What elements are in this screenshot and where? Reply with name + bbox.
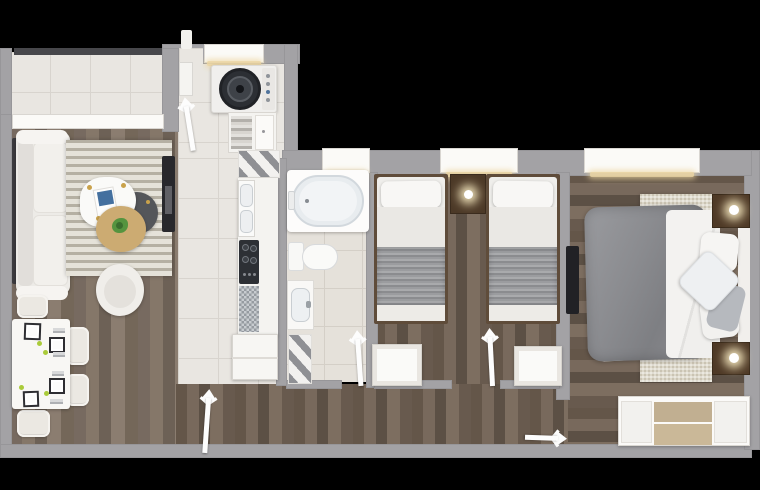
balcony-floor [10,52,166,116]
cooktop-knob-2 [248,273,251,276]
wardrobe-left-door [621,401,652,443]
laundry-shelf-handle [262,130,265,133]
twin-cabinet-left-top [377,349,417,381]
hallway-floor [176,384,568,446]
wall-balcony-left [0,48,12,118]
basin-faucet [306,301,311,308]
dining-chair-top [17,295,48,318]
placemat-4 [23,391,40,408]
twin-bed-left-blanket [377,247,445,306]
placemat-2 [49,337,65,353]
twin-bed-right-foot [489,305,557,321]
toilet-bowl [302,244,338,270]
twin-bed-right-blanket [489,247,557,306]
napkin-dot-1 [37,341,42,346]
master-lamp-bottom [729,353,739,363]
cooktop-knob-1 [243,273,246,276]
bathroom-door-arrow-stem [355,339,363,386]
napkin-dot-3 [19,385,24,390]
sofa-armrest-top [16,130,68,144]
master-lamp-top [729,205,739,215]
kitchen-backsplash-mosaic [239,286,259,332]
washing-machine-hub [236,85,244,93]
cutlery-mark-3 [52,371,64,376]
floor-plan [0,0,760,490]
twin-bed-left-foot [377,305,445,321]
burner-1 [242,244,249,251]
coffee-table-plant-core [116,222,123,229]
twin-bed-left-sheet [377,207,445,251]
bathtub-drain [305,199,309,203]
placemat-3 [49,378,65,394]
bedroom1-door-arrow [481,328,500,387]
master-tv [566,246,579,314]
magazine-cover [97,190,114,206]
wall-south [0,444,752,458]
kitchen-sink-bowl-1 [240,184,253,207]
bedroom1-door-arrow-stem [487,337,495,386]
armchair-seat [104,275,136,308]
sofa-seat-cushion-1 [33,142,68,213]
burner-2 [250,245,257,252]
gold-dot-white-2 [121,183,126,188]
wardrobe-shelf-top [654,402,712,422]
bathtub-faucet [288,191,295,210]
entry-door-leaf [179,62,193,96]
twin-cabinet-right-top [519,351,557,381]
master-door-arrow-stem [525,435,558,441]
wardrobe-right-door [714,401,747,443]
wardrobe-shelf-bottom [654,424,712,445]
gold-dot-dark-1 [146,200,150,204]
bathroom-door-arrow [349,330,369,387]
wall-balcony-divider [162,48,179,132]
hallway-door-arrow-stem [202,398,211,453]
balcony-window-band [12,114,164,129]
kitchen-upper-cabinet [238,150,280,178]
twin-bed-right-pillow [493,180,553,208]
napkin-dot-4 [44,391,49,396]
cutlery-mark-4 [50,399,63,404]
master-door-arrow [525,429,568,446]
twin-bed-left-pillow [381,180,441,208]
twin-nightstand-lamp [464,190,473,199]
master-headboard [738,220,750,346]
sofa-back-cushions [18,140,33,286]
cutlery-mark-2 [53,352,65,357]
master-window-glow [590,172,694,177]
laundry-towels [231,116,252,149]
fridge-seam [232,357,278,359]
balcony-railing [14,48,164,55]
panel-dot-4 [266,98,270,102]
wall-entry-right [284,44,298,156]
dining-chair-bottom [17,410,50,437]
twin-bed-right-sheet [489,207,557,251]
gold-dot-white-1 [87,185,92,190]
panel-dot-1 [266,74,270,78]
burner-3 [242,256,249,263]
panel-dot-3 [266,90,270,94]
entry-door-swing-arrow-stem [184,106,196,151]
entry-door-outside [181,30,192,49]
kitchen-sink-bowl-2 [240,210,253,233]
sofa-seat-cushion-2 [33,215,68,286]
cutlery-mark-1 [53,328,65,333]
tv-bracket [165,186,172,214]
cooktop-knob-3 [253,273,256,276]
placemat-1 [24,323,42,341]
wall-west [0,114,12,458]
master-window [584,148,700,173]
burner-4 [250,257,257,264]
panel-dot-2 [266,82,270,86]
bedroom1-window [440,148,518,173]
napkin-dot-2 [43,350,48,355]
bathroom-linen-cabinet [288,334,312,384]
